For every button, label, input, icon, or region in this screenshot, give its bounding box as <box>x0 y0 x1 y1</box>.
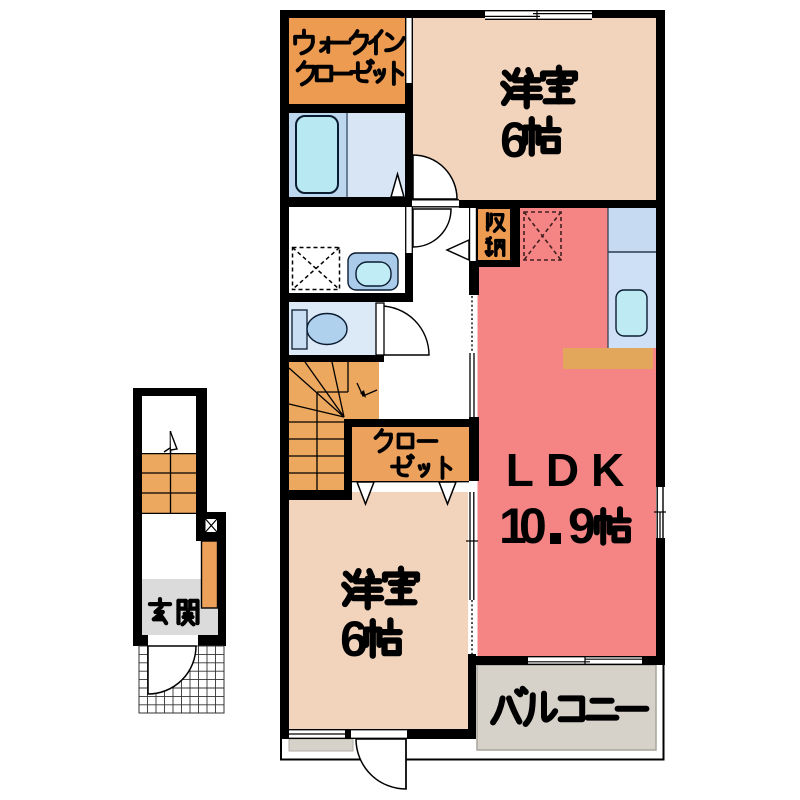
svg-text:9: 9 <box>568 498 596 554</box>
svg-text:0: 0 <box>519 498 547 554</box>
svg-text:LDK: LDK <box>506 444 637 496</box>
